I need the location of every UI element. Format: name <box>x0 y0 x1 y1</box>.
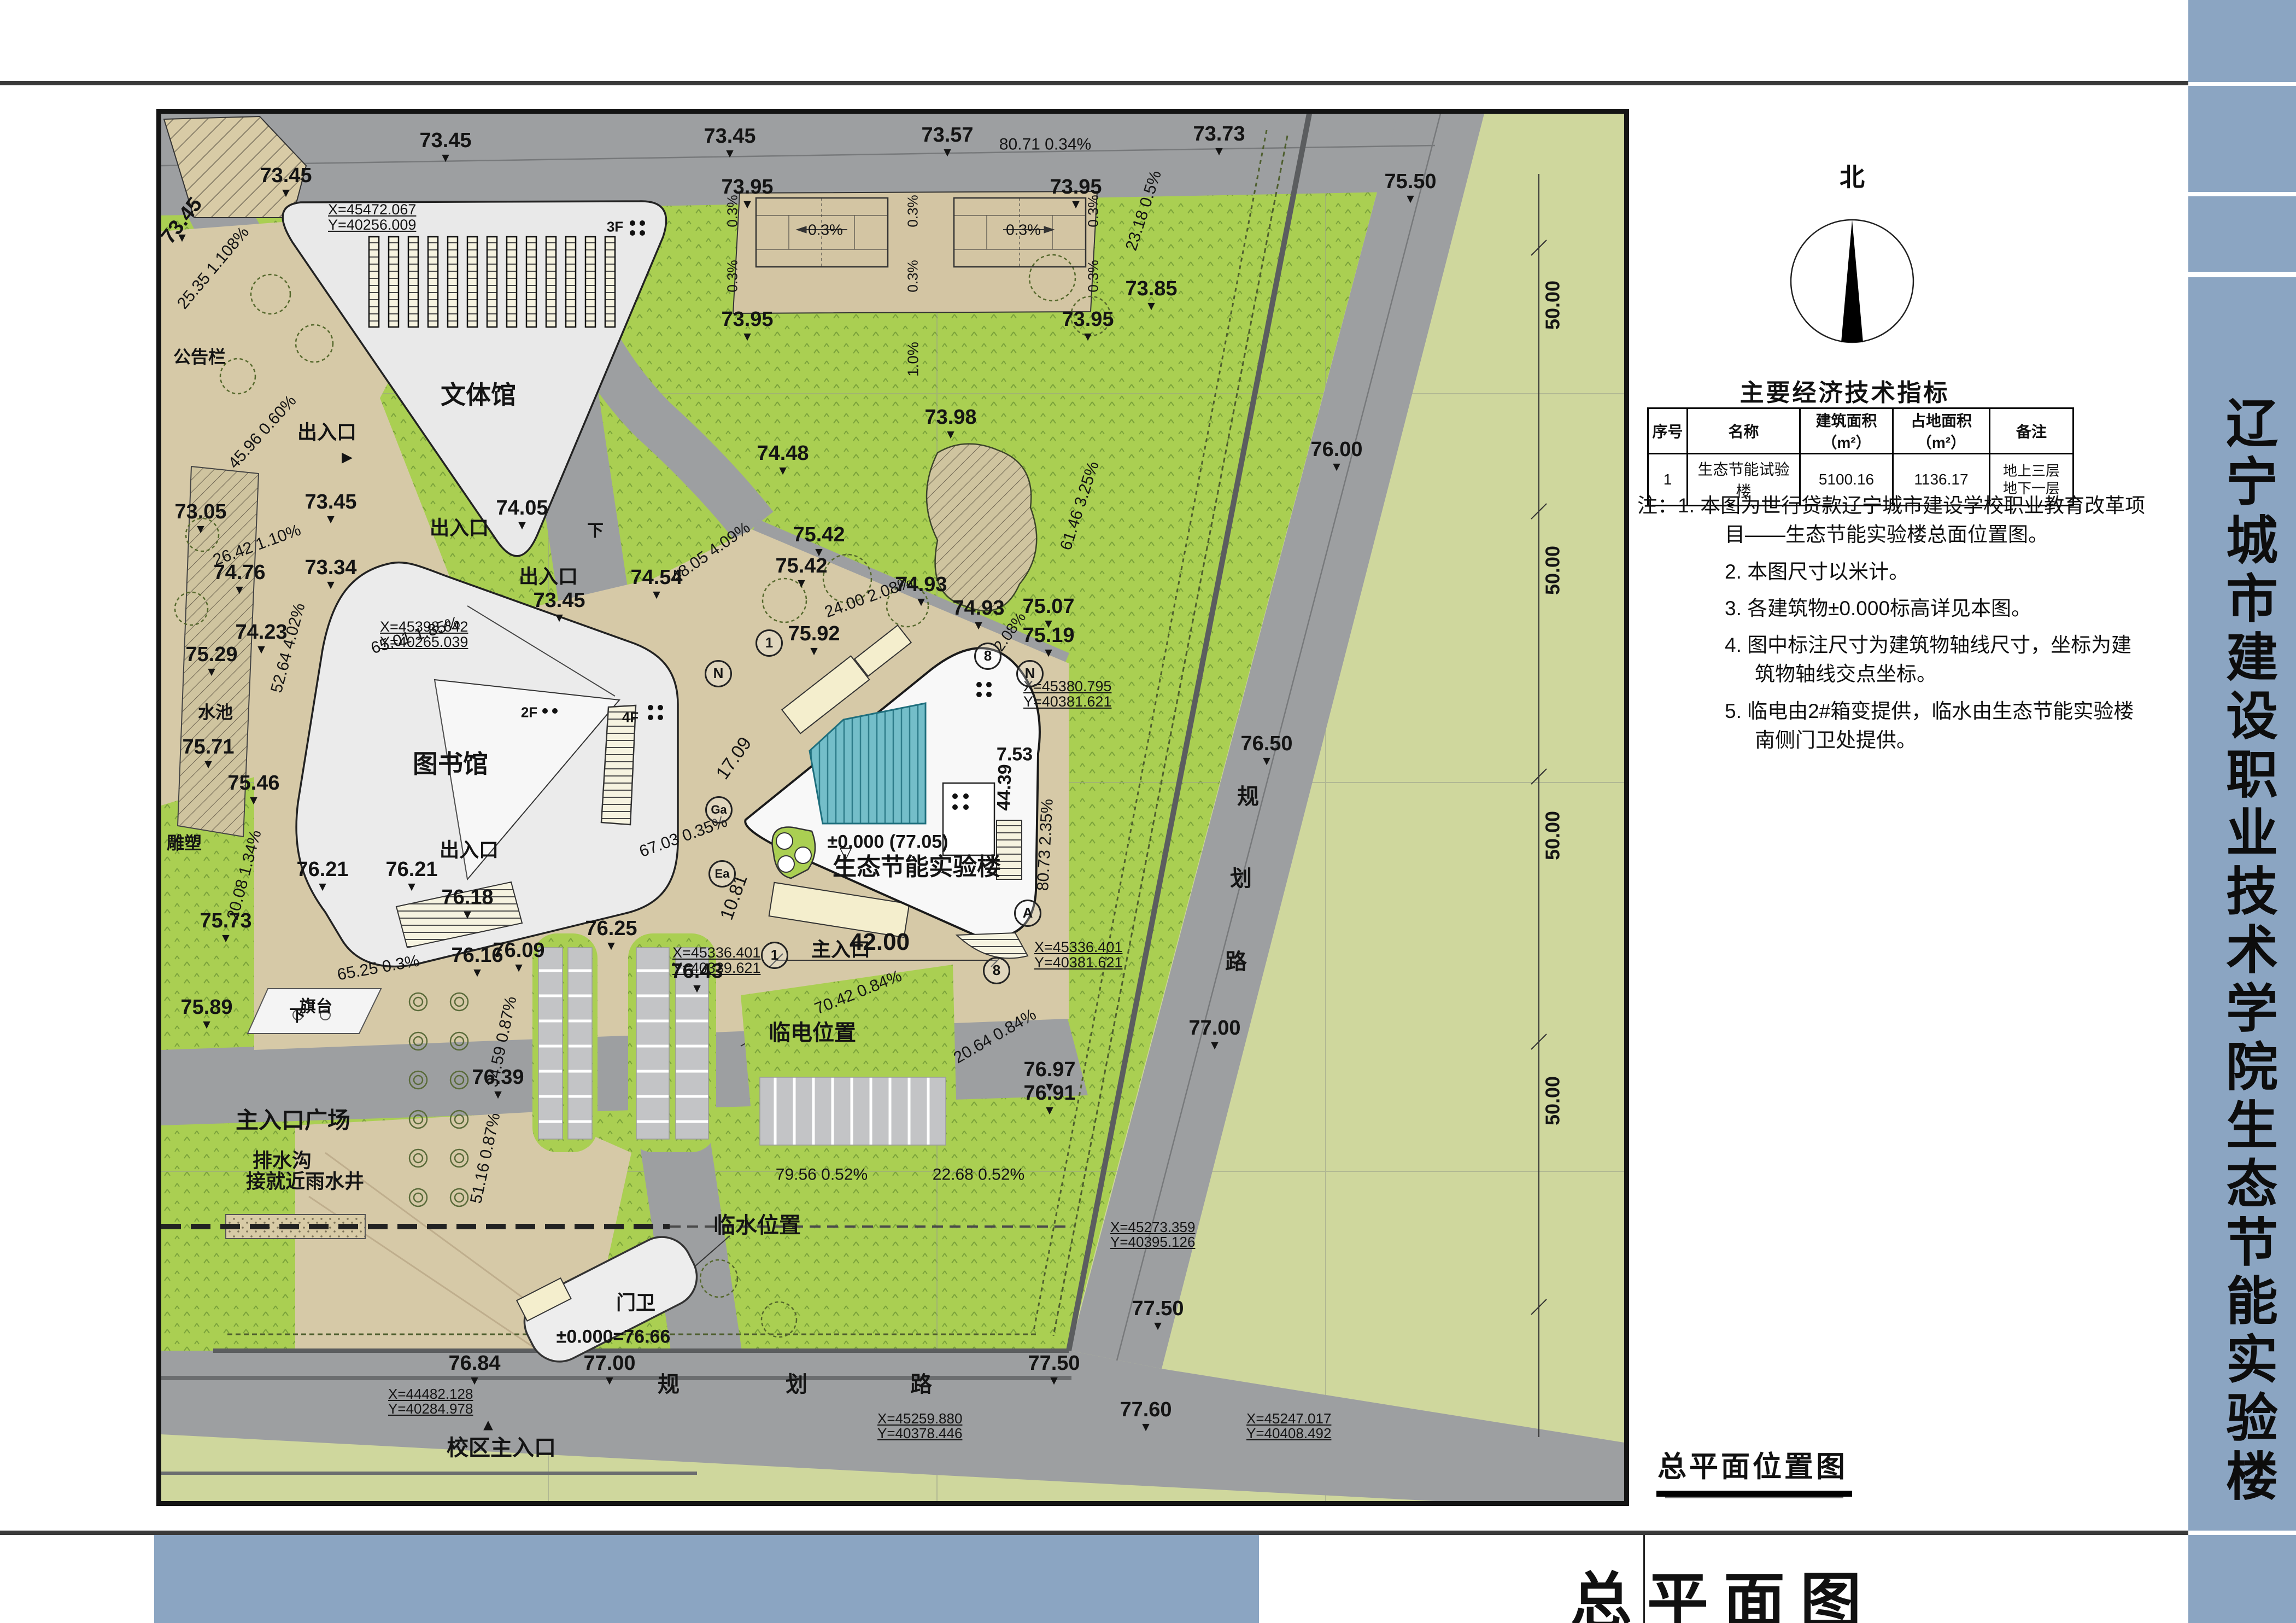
econ-table-title: 主要经济技术指标 <box>1647 373 2042 408</box>
map-label: ▼ <box>1145 300 1158 313</box>
map-label: ▼ <box>941 146 954 159</box>
map-label: ▼ <box>202 758 215 771</box>
map-label: 75.73 <box>200 910 251 932</box>
map-label: X=45247.017 Y=40408.492 <box>1246 1411 1331 1441</box>
map-label: 76.84 <box>448 1353 500 1375</box>
map-label: ▼ <box>206 665 218 679</box>
map-label: 7.53 <box>997 745 1033 764</box>
map-label: 生态节能实验楼 <box>833 855 1001 880</box>
map-label: 校区主入口 <box>447 1437 556 1460</box>
map-label: 74.93 <box>952 598 1004 620</box>
map-label: 73.45 <box>260 165 312 187</box>
note-line: 2. 本图尺寸以米计。 <box>1637 557 2148 586</box>
map-label: ▼ <box>604 1374 616 1387</box>
map-label: 73.73 <box>1193 124 1245 145</box>
map-label: 77.00 <box>583 1353 635 1375</box>
map-label: 50.00 <box>1542 281 1562 330</box>
strip-gap <box>2188 1531 2296 1535</box>
map-label: 75.29 <box>185 644 237 666</box>
map-label: 0.3% <box>1086 195 1100 227</box>
map-label: 52.64 4.02% <box>268 602 308 695</box>
bottom-accent-bar <box>154 1535 1259 1623</box>
map-label: ▼ <box>233 583 246 597</box>
map-label: 74.48 <box>757 443 809 465</box>
map-label: 74.05 <box>496 498 548 519</box>
map-label: ▼ <box>461 908 474 921</box>
map-label: ▼ <box>741 198 754 211</box>
map-label: 划 <box>1230 868 1252 891</box>
map-label: ▼ <box>741 330 754 343</box>
map-label: ▼ <box>440 151 452 165</box>
map-label: 20.64 0.84% <box>951 1006 1039 1066</box>
map-label: ▼ <box>195 523 207 536</box>
table-header: 建筑面积（m²） <box>1800 408 1893 454</box>
map-label: 61.46 3.25% <box>1057 459 1102 552</box>
map-label: 75.46 <box>227 773 279 795</box>
map-label: 雕塑 <box>167 834 202 852</box>
map-label: ▼ <box>176 231 189 244</box>
map-label: 2F <box>521 705 537 720</box>
axis-bubble: 8 <box>974 643 1001 670</box>
map-label: 73.98 <box>924 407 976 429</box>
map-label: ±0.000=76.66 <box>557 1327 671 1346</box>
map-label: 出入口 <box>430 517 489 538</box>
map-label: 76.21 <box>296 859 348 881</box>
map-label: 排水沟 <box>253 1150 312 1170</box>
map-label: 73.45 <box>419 130 471 152</box>
north-arrow: 北 <box>1787 157 1918 349</box>
map-label: ▼ <box>553 611 566 624</box>
map-label: 75.07 <box>1022 596 1074 618</box>
map-label: 75.92 <box>788 623 840 645</box>
map-label: 76.43 <box>671 961 723 983</box>
map-label: 80.71 0.34% <box>999 136 1091 153</box>
strip-gap <box>2188 272 2296 277</box>
map-label: 75.50 <box>1384 171 1436 193</box>
map-label: 0.3% <box>905 260 920 292</box>
map-label: ▼ <box>248 794 260 807</box>
table-header: 名称 <box>1688 408 1800 454</box>
axis-bubble: Ga <box>705 796 733 824</box>
map-label: ▼ <box>1070 198 1082 211</box>
map-label: 出入口 <box>440 839 499 860</box>
map-label: ▼ <box>1042 646 1055 659</box>
plan-sub-title: 总平面位置图 <box>1656 1444 1852 1497</box>
axis-bubble: A <box>1014 900 1041 927</box>
map-label: 51.16 0.87% <box>467 1111 503 1205</box>
map-label: 公告栏 <box>173 348 226 366</box>
map-label: ▶ <box>342 449 353 464</box>
map-label: 50.00 <box>1542 546 1562 595</box>
map-label: ▼ <box>724 147 736 160</box>
map-label: 0.3% <box>725 195 740 227</box>
map-label: 79.56 0.52% <box>776 1166 868 1183</box>
map-label: 76.97 <box>1023 1059 1075 1081</box>
map-label: 75.19 <box>1022 625 1074 647</box>
axis-bubble: 8 <box>983 957 1010 984</box>
map-label: 接就近雨水井 <box>246 1171 364 1191</box>
map-label: 50.00 <box>1542 811 1562 860</box>
map-label: ▼ <box>1404 192 1417 206</box>
map-label: 主入口广场 <box>236 1108 350 1132</box>
axis-bubble: 1 <box>755 629 783 657</box>
map-label: ▼ <box>201 1018 213 1031</box>
map-label: ▼ <box>1331 460 1343 474</box>
map-label: ▼ <box>777 464 789 477</box>
map-label: ▼ <box>808 645 821 658</box>
note-line: 5. 临电由2#箱变提供，临水由生态节能实验楼南侧门卫处提供。 <box>1637 697 2148 755</box>
map-label-layer: 73.45▼73.45▼73.45▼25.35 1.108%公告栏45.96 0… <box>161 114 1624 1501</box>
map-label: 50.00 <box>1542 1076 1562 1125</box>
map-label: 4F <box>622 710 639 725</box>
map-label: 77.50 <box>1028 1353 1080 1375</box>
map-label: ▼ <box>317 880 329 894</box>
map-label: ▼ <box>1209 1039 1221 1052</box>
map-label: 74.76 <box>213 562 265 584</box>
map-label: 下 <box>587 522 604 539</box>
map-label: 77.00 <box>1188 1018 1240 1040</box>
map-label: 65.25 0.3% <box>336 952 421 983</box>
map-label: 旗台 <box>300 998 332 1015</box>
map-label: 44.39 <box>994 764 1015 811</box>
map-label: 73.05 <box>174 501 226 523</box>
map-label: 73.45 <box>304 492 356 513</box>
map-label: 1.0% <box>905 342 921 377</box>
map-label: 77.50 <box>1132 1298 1184 1320</box>
map-label: ▼ <box>406 880 418 894</box>
map-label: 73.45 <box>704 126 755 148</box>
map-label: 73.34 <box>304 557 356 579</box>
map-label: 出入口 <box>519 566 578 586</box>
map-label: X=45336.401 Y=40381.621 <box>1034 939 1122 970</box>
map-label: 0.3% <box>905 195 920 227</box>
map-label: 76.00 <box>1310 439 1362 461</box>
map-label: 76.21 <box>385 859 437 881</box>
note-line: 4. 图中标注尺寸为建筑物轴线尺寸，坐标为建筑物轴线交点坐标。 <box>1637 630 2148 689</box>
map-label: 0.3% <box>1006 221 1041 237</box>
map-label: 门卫 <box>616 1292 655 1312</box>
map-label: 76.50 <box>1240 733 1292 755</box>
map-label: 75.42 <box>793 524 845 546</box>
map-label: 0.3% <box>1086 260 1100 292</box>
map-label: 75.42 <box>775 556 827 577</box>
map-label: ▼ <box>280 186 292 200</box>
map-label: 划 <box>786 1374 807 1397</box>
notes-block: 注：1. 本图为世行贷款辽宁城市建设学校职业教育改革项目——生态节能实验楼总面位… <box>1637 491 2148 762</box>
map-label: 临电位置 <box>769 1022 856 1045</box>
map-label: ▼ <box>1048 1374 1061 1387</box>
top-divider-bar <box>0 81 2188 85</box>
map-label: ▼ <box>973 619 985 632</box>
note-line: 3. 各建筑物±0.000标高详见本图。 <box>1637 594 2148 623</box>
map-label: ▼ <box>691 982 704 995</box>
map-label: ▼ <box>651 588 663 602</box>
map-label: 74.93 <box>895 574 947 596</box>
map-label: 0.3% <box>808 221 843 237</box>
map-label: 76.18 <box>441 887 493 909</box>
map-label: 路 <box>910 1374 932 1397</box>
north-arrow-icon <box>1787 194 1918 352</box>
map-label: 76.25 <box>585 918 637 940</box>
map-label: 23.18 0.5% <box>1123 168 1165 253</box>
map-label: 图书馆 <box>413 751 488 778</box>
map-label: ▼ <box>325 513 337 526</box>
axis-bubble: 1 <box>761 942 788 969</box>
map-label: 22.68 0.52% <box>933 1166 1024 1183</box>
map-label: 70.42 0.84% <box>812 967 904 1018</box>
map-label: 水池 <box>198 703 233 721</box>
map-label: 20.08 1.34% <box>224 828 265 922</box>
map-label: 74.23 <box>235 622 287 644</box>
axis-bubble: N <box>1016 660 1044 687</box>
map-label: 73.95 <box>721 309 773 331</box>
map-label: 路 <box>1225 951 1247 974</box>
map-label: ▼ <box>795 577 808 590</box>
map-label: ▼ <box>945 428 957 441</box>
map-label: X=45273.359 Y=40395.126 <box>1110 1220 1195 1250</box>
map-label: 主入口 <box>811 939 870 959</box>
map-label: ▼ <box>255 643 268 656</box>
map-label: ▼ <box>220 932 232 945</box>
strip-gap <box>2188 192 2296 196</box>
table-header: 占地面积（m²） <box>1893 408 1990 454</box>
map-label: ▼ <box>492 1088 505 1101</box>
map-label: 文体馆 <box>441 382 516 408</box>
map-label: ▼ <box>1213 145 1226 158</box>
page: { "doc": { "project_vertical_title": "辽宁… <box>0 0 2296 1623</box>
map-label: ▼ <box>605 939 618 953</box>
map-label: 出入口 <box>297 422 356 442</box>
map-label: ▼ <box>1152 1320 1164 1333</box>
axis-bubble: N <box>705 660 732 687</box>
map-label: 73.57 <box>921 125 973 147</box>
bottom-divider-bar <box>0 1531 2188 1535</box>
map-label: X=44482.128 Y=40284.978 <box>388 1387 473 1416</box>
map-label: 45.96 0.60% <box>225 392 300 472</box>
map-label: 75.71 <box>182 737 234 758</box>
sheet-title: 总平面图 <box>1259 1552 2188 1623</box>
map-label: 76.09 <box>493 940 544 962</box>
map-label: 76.91 <box>1023 1083 1075 1105</box>
map-label: ▼ <box>1044 1104 1056 1117</box>
map-label: ▼ <box>325 579 337 592</box>
map-label: ▼ <box>1140 1421 1152 1434</box>
map-label: 73.85 <box>1125 278 1177 300</box>
map-label: ▼ <box>513 961 525 974</box>
map-label: ▼ <box>915 596 928 609</box>
table-header: 备注 <box>1990 408 2074 454</box>
strip-gap <box>2188 82 2296 86</box>
map-label: ▼ <box>516 519 529 532</box>
map-label: ▼ <box>471 966 484 979</box>
map-label: X=45398.642 Y=40265.039 <box>380 619 468 650</box>
map-label: 80.73 2.35% <box>1034 798 1056 891</box>
map-label: ▼ <box>1082 330 1094 343</box>
map-label: 0.3% <box>725 260 740 292</box>
map-label: 临水位置 <box>713 1215 801 1237</box>
map-label: 17.09 <box>713 734 755 783</box>
map-label: ▼ <box>1261 755 1273 768</box>
map-label: X=45259.880 Y=40378.446 <box>877 1411 962 1441</box>
map-label: 74.54 <box>630 567 682 589</box>
map-label: 规 <box>658 1374 680 1397</box>
project-vertical-title: 辽宁城市建设职业技术学院生态节能实验楼 <box>2203 388 2285 1515</box>
map-label: 3F <box>607 219 623 234</box>
table-header: 序号 <box>1648 408 1688 454</box>
map-label: X=45472.067 Y=40256.009 <box>328 202 416 232</box>
site-plan-drawing: 73.45▼73.45▼73.45▼25.35 1.108%公告栏45.96 0… <box>156 109 1629 1506</box>
map-label: 77.60 <box>1120 1399 1172 1421</box>
map-label: 75.89 <box>180 997 232 1019</box>
map-label: 73.45 <box>533 590 585 612</box>
note-line: 注：1. 本图为世行贷款辽宁城市建设学校职业教育改革项目——生态节能实验楼总面位… <box>1637 491 2148 550</box>
north-label: 北 <box>1787 157 1918 194</box>
map-label: ▲ <box>480 1416 496 1433</box>
map-label: 规 <box>1237 786 1259 809</box>
axis-bubble: Ea <box>708 860 736 888</box>
map-label: 73.95 <box>1062 309 1114 331</box>
